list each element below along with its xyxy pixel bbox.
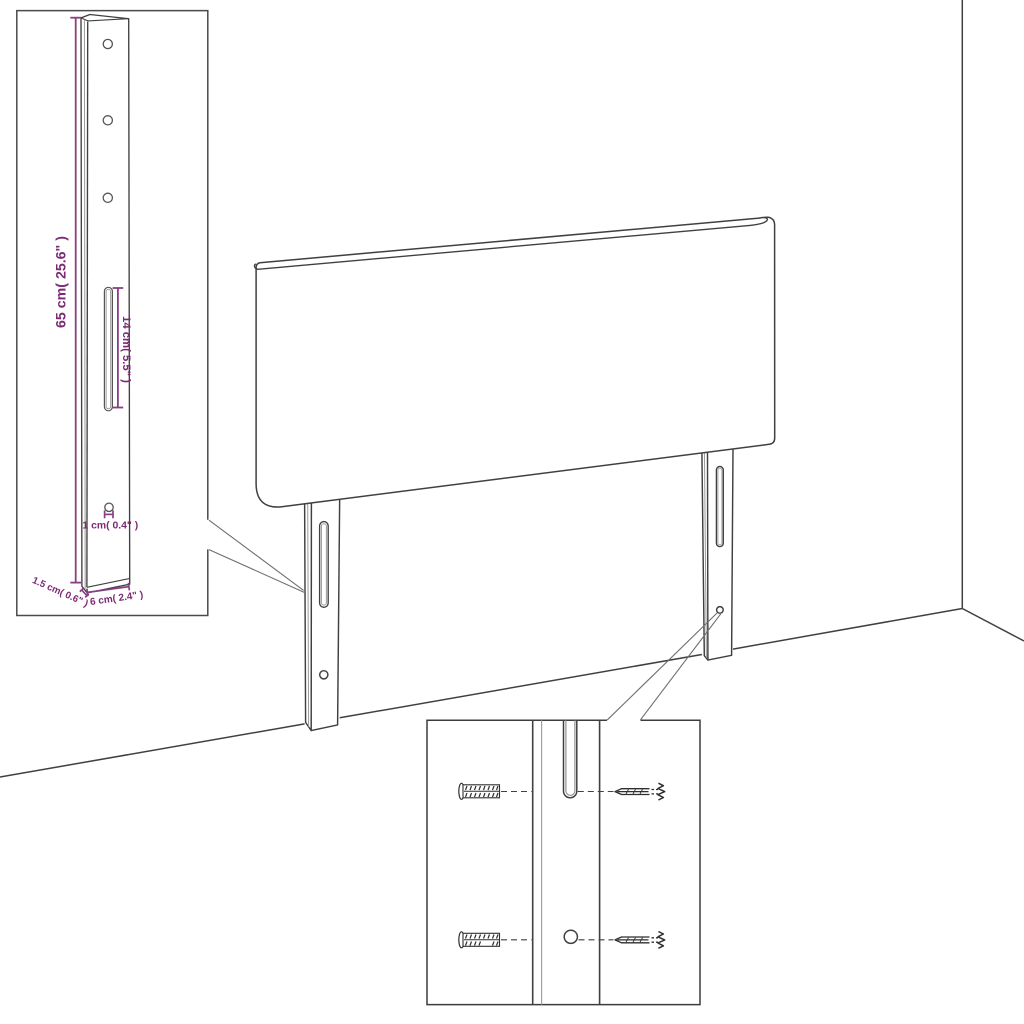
svg-text:65 cm( 25.6" ): 65 cm( 25.6" ) [53, 236, 69, 328]
svg-text:14 cm( 5.5" ): 14 cm( 5.5" ) [120, 316, 132, 383]
svg-text:1 cm( 0.4" ): 1 cm( 0.4" ) [82, 521, 138, 532]
